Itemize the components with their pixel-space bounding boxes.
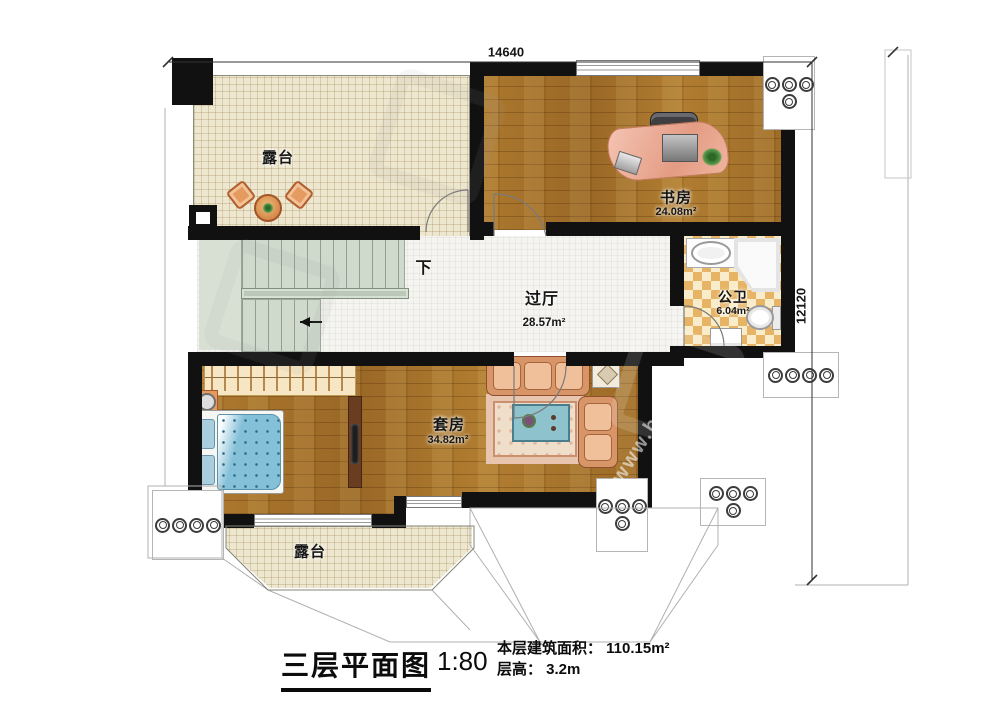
wall: [670, 236, 684, 306]
floor-plan-canvas: 露台 书房 24.08m² 过厅 28.57m² 公卫 6.04m² 套房 34…: [0, 0, 1000, 706]
sink-icon: [691, 241, 731, 265]
duvet: [217, 414, 281, 490]
stairs-down-label: 下: [415, 254, 432, 278]
bath-cabinet-icon: [710, 328, 742, 348]
dimension-top-label: 14640: [488, 45, 524, 60]
plan-title: 三层平面图: [281, 644, 431, 692]
corner-post-ornament: [763, 56, 815, 130]
room-label-bath: 公卫: [718, 287, 748, 307]
chimney-block: [172, 58, 213, 105]
wall: [470, 62, 484, 240]
wall: [188, 352, 514, 366]
room-label-terrace-top: 露台: [262, 147, 294, 168]
room-area-bath: 6.04m²: [716, 305, 749, 317]
suite-terrace-window: [254, 514, 372, 527]
terrace-top-floor: [193, 75, 470, 240]
stair-lower-flight: [241, 299, 321, 352]
wall: [394, 496, 406, 528]
toilet-icon: [746, 305, 774, 330]
desk-plant-icon: [702, 148, 722, 166]
floor-area-line: 本层建筑面积： 110.15m²: [497, 637, 670, 658]
wall: [566, 352, 684, 366]
room-label-terrace-bottom: 露台: [294, 541, 326, 562]
study-window: [576, 60, 700, 76]
room-area-study: 24.08m²: [656, 206, 697, 218]
coffee-table-icon: [512, 404, 570, 442]
room-label-hall: 过厅: [525, 285, 559, 309]
corner-post-ornament: [700, 478, 766, 526]
floor-height-line: 层高： 3.2m: [497, 658, 580, 679]
bed-icon: [196, 410, 284, 494]
terrace-plant-icon: [263, 203, 273, 213]
stair-handrail: [241, 288, 409, 299]
tv-icon: [351, 424, 359, 464]
dimension-right-label: 12120: [794, 288, 809, 324]
stair-upper-flight: [241, 238, 405, 290]
room-label-suite: 套房: [433, 414, 465, 435]
corner-post-ornament: [152, 490, 224, 560]
room-area-suite: 34.82m²: [428, 434, 469, 446]
corner-post-ornament: [763, 352, 839, 398]
plan-scale: 1:80: [437, 646, 488, 677]
room-label-study: 书房: [660, 187, 692, 208]
wall: [470, 62, 576, 76]
corner-post-ornament: [596, 478, 648, 552]
wall: [188, 226, 420, 240]
sofa-two-seat-icon: [578, 396, 618, 468]
wall: [484, 222, 494, 236]
terrace-bottom-floor: [222, 522, 478, 592]
monitor-icon: [662, 134, 698, 162]
stair-landing: [199, 238, 243, 350]
room-area-hall: 28.57m²: [523, 317, 566, 329]
hangers: [211, 365, 349, 391]
suite-side-window: [406, 496, 462, 508]
wall: [546, 222, 781, 236]
